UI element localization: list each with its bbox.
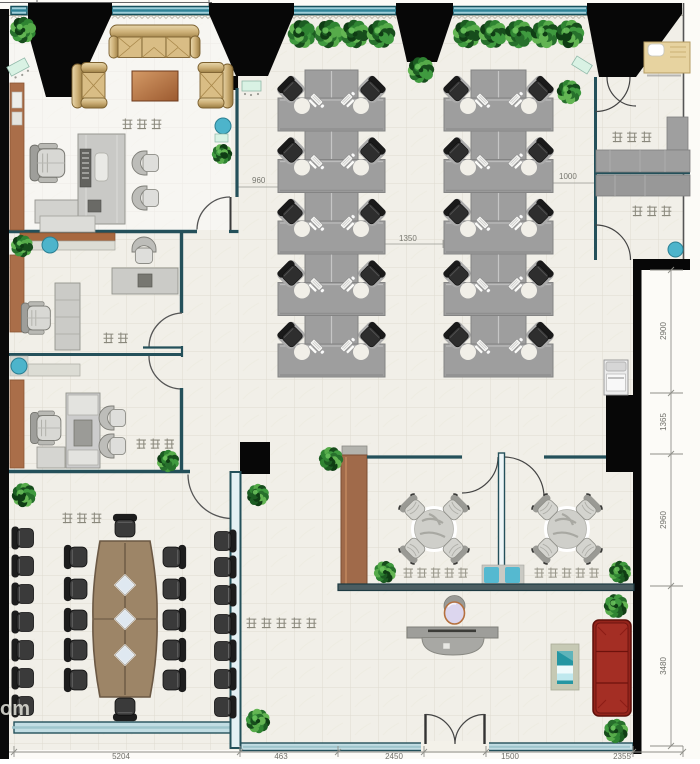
svg-text:2355: 2355 [613,752,631,759]
svg-text:5204: 5204 [112,752,130,759]
svg-text:1365: 1365 [659,413,668,431]
svg-text:1500: 1500 [501,752,519,759]
svg-text:2450: 2450 [385,752,403,759]
svg-text:960: 960 [252,176,266,185]
svg-text:3480: 3480 [659,657,668,675]
svg-text:1350: 1350 [399,234,417,243]
svg-text:om: om [0,698,30,720]
svg-text:2960: 2960 [659,511,668,529]
svg-text:2900: 2900 [659,322,668,340]
svg-text:463: 463 [274,752,288,759]
svg-text:1000: 1000 [559,172,577,181]
